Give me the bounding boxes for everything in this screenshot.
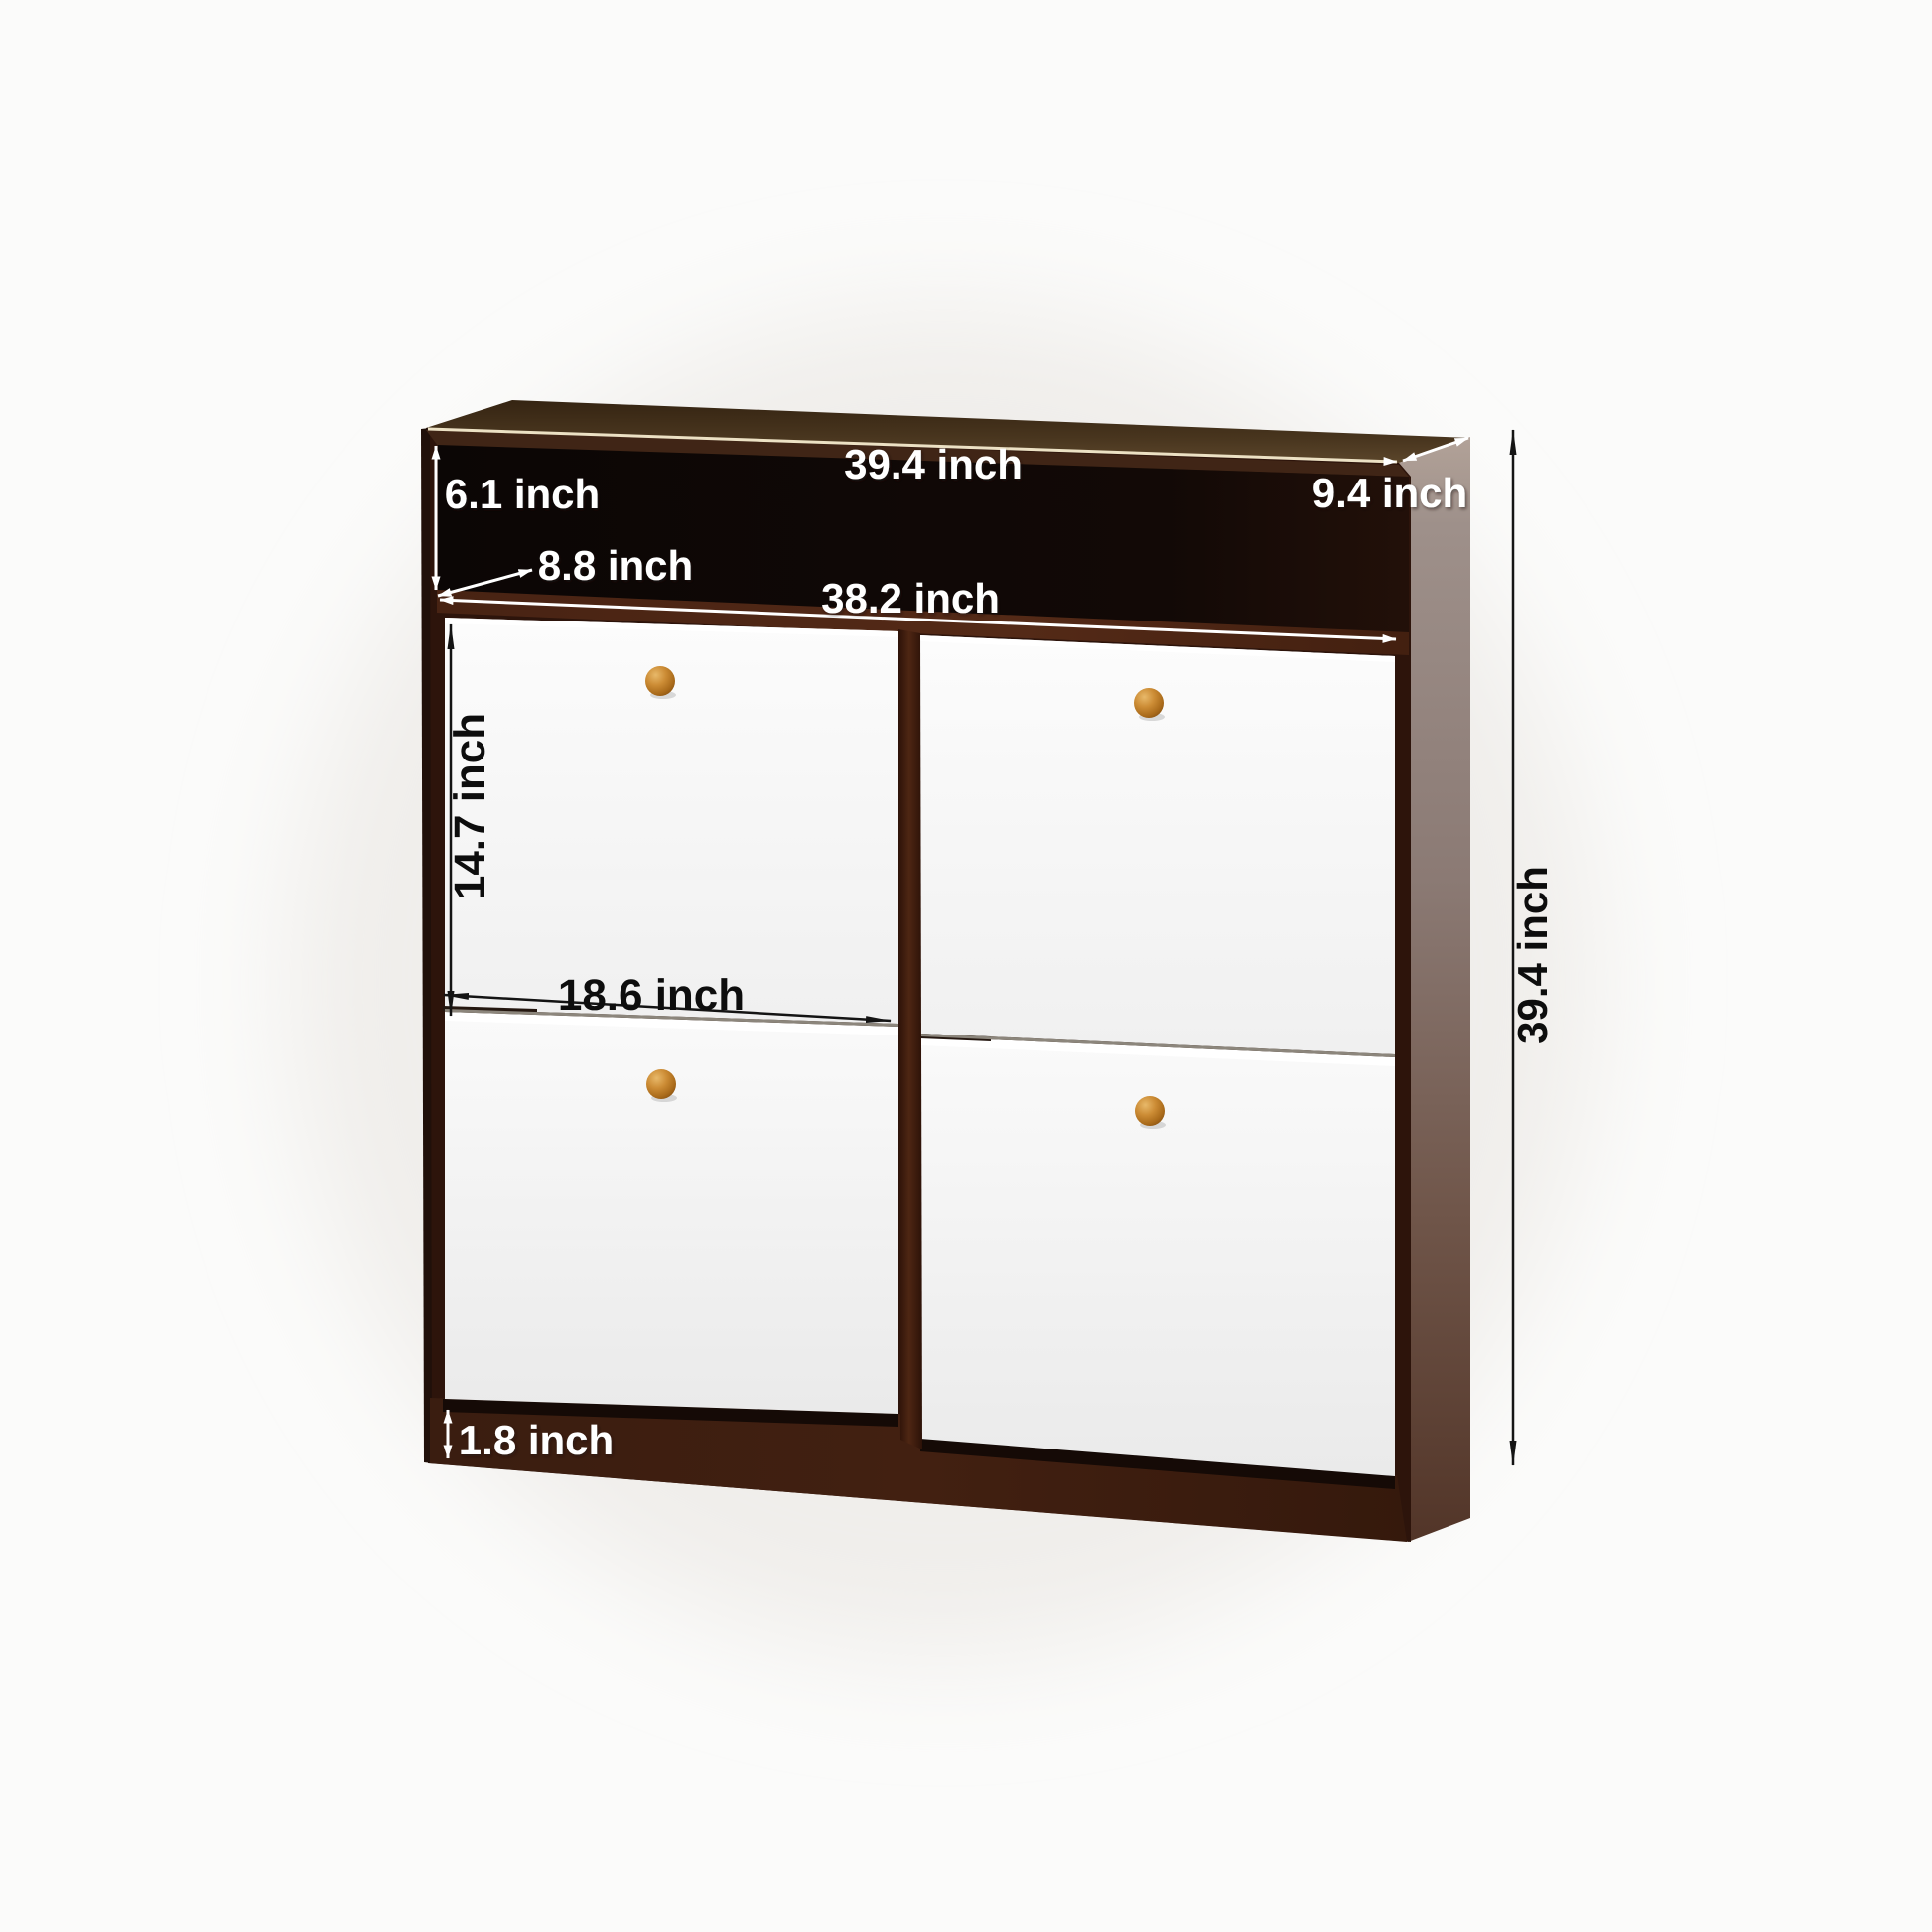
svg-text:14.7 inch: 14.7 inch [446,713,494,899]
svg-text:39.4 inch: 39.4 inch [1509,866,1556,1044]
svg-text:39.4 inch: 39.4 inch [844,441,1023,487]
svg-text:9.4 inch: 9.4 inch [1312,470,1467,516]
svg-text:8.8 inch: 8.8 inch [538,542,693,589]
svg-text:1.8 inch: 1.8 inch [459,1417,614,1463]
svg-text:6.1 inch: 6.1 inch [445,471,600,517]
svg-text:38.2 inch: 38.2 inch [821,575,1000,621]
svg-text:18.6 inch: 18.6 inch [558,971,745,1020]
